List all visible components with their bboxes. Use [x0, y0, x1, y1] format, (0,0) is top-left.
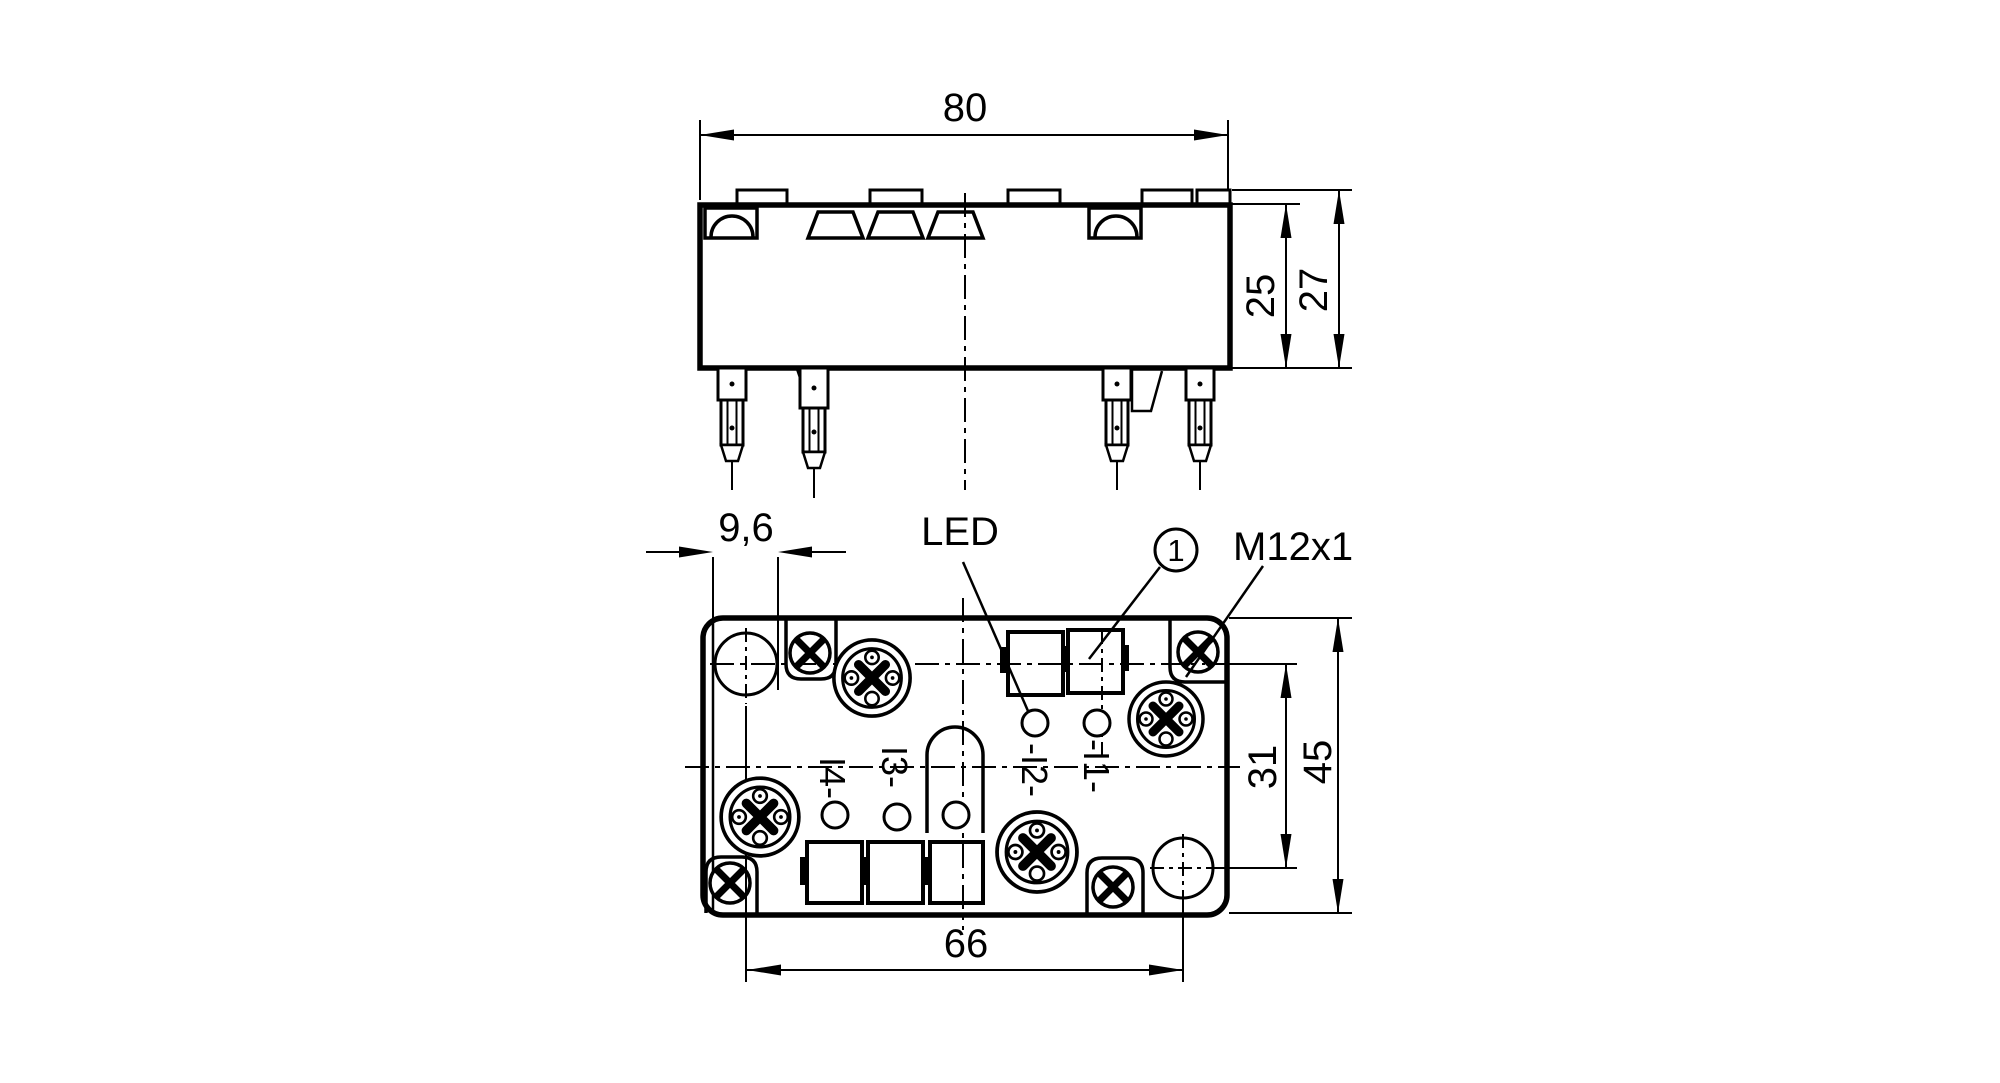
led-hole-center [943, 802, 969, 828]
port-label-i3: I3- [874, 746, 915, 788]
port-labels: I4- I3- -I2- -I1- [812, 739, 1117, 799]
dim-9-6-label: 9,6 [718, 506, 774, 550]
dome-pocket-left [705, 208, 757, 238]
m12-socket-bottom-left [721, 778, 799, 856]
m12-socket-right [1129, 682, 1203, 756]
dimensional-drawing: 80 25 27 [0, 0, 2000, 1083]
screw-icon-bottom-left [710, 863, 750, 903]
dimension-80: 80 [700, 86, 1228, 200]
screw-icon-bottom-right [1093, 867, 1133, 907]
led-hole-i3 [884, 804, 910, 830]
led-hole-i2 [1022, 710, 1048, 736]
dim-25-label: 25 [1239, 274, 1283, 319]
dim-31-label: 31 [1241, 745, 1285, 790]
dome-pocket-right [1089, 208, 1141, 238]
m12-socket-top-left [834, 640, 910, 716]
dim-27-label: 27 [1292, 268, 1336, 313]
screw-icon-top-left [790, 633, 830, 673]
dim-66-label: 66 [944, 922, 989, 966]
callout-1-label: 1 [1167, 533, 1184, 568]
dimension-25-27: 25 27 [1232, 190, 1352, 368]
led-hole-i1 [1084, 710, 1110, 736]
m12x1-label: M12x1 [1233, 525, 1353, 569]
vent-trapezoids [808, 212, 983, 238]
led-label: LED [921, 510, 999, 554]
port-label-i4: I4- [812, 757, 853, 799]
port-label-i1: -I1- [1076, 739, 1117, 793]
bottom-view: I4- I3- -I2- -I1- 9,6 66 [646, 506, 1353, 982]
led-hole-i4 [822, 802, 848, 828]
m12-socket-bottom-center [997, 812, 1077, 892]
dim-45-label: 45 [1296, 740, 1340, 785]
terminal-blocks-top [1000, 630, 1129, 695]
top-view: 80 25 27 [700, 86, 1352, 498]
port-label-i2: -I2- [1014, 743, 1055, 797]
dim-80-label: 80 [943, 86, 988, 130]
terminal-blocks-bottom [800, 842, 983, 903]
technical-drawing-canvas: 80 25 27 [0, 0, 2000, 1083]
